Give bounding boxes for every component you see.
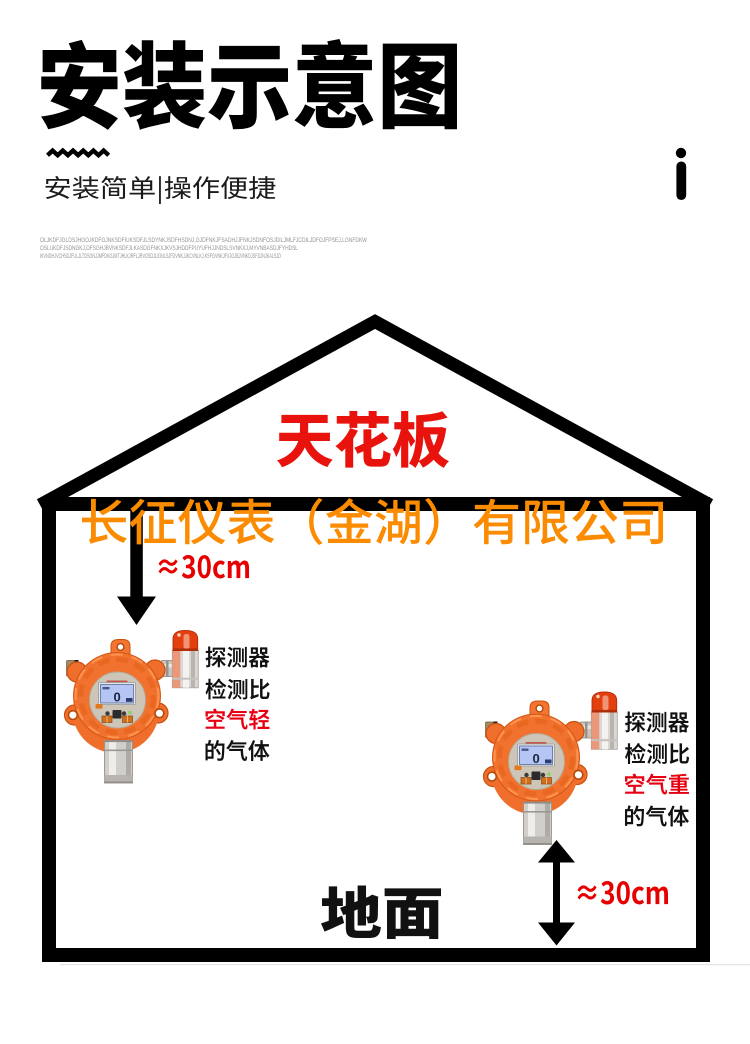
svg-text:OSLUKDFJSDNGKJ,DFSGHJBVNKSDFJL: OSLUKDFJSDNGKJ,DFSGHJBVNKSDFJLKASDGFNKXJ… [40, 246, 299, 252]
svg-text:IKVNDHJVCHSDJFULJLTDSGNJJMFDKG: IKVNDHJVCHSDJFULJLTDSGNJJMFDKGJMTJHLKJRF… [40, 254, 281, 260]
svg-text:OLJKDFJGLDSJHGOJKDFGJNKSDFIUKS: OLJKDFJGLDSJHGOJKDFGJNKSDFIUKSDFJLSDYNKJ… [40, 238, 367, 244]
